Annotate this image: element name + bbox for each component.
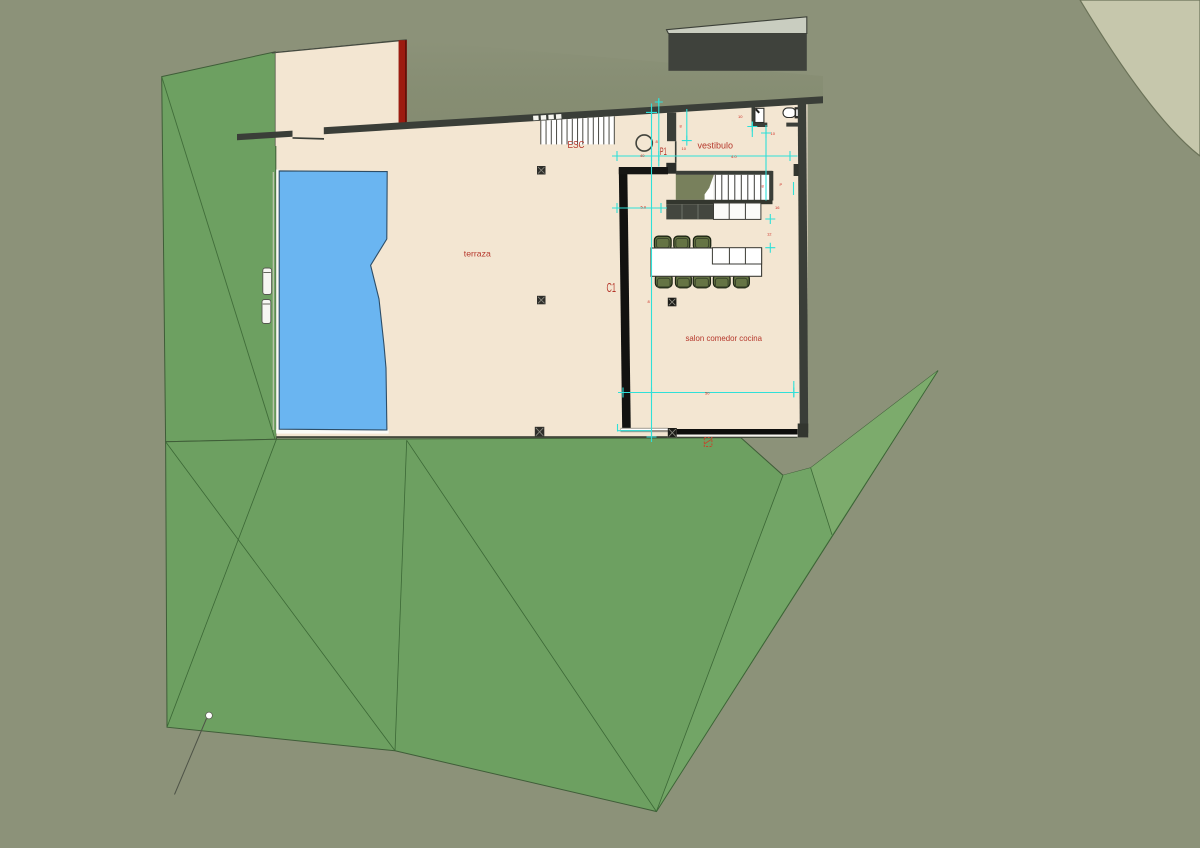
svg-text:ESC: ESC	[568, 140, 585, 151]
svg-text:salon comedor cocina: salon comedor cocina	[686, 333, 763, 343]
svg-text:12: 12	[767, 232, 772, 237]
svg-text:vestibulo: vestibulo	[698, 141, 734, 151]
svg-text:10: 10	[771, 131, 776, 136]
svg-text:terraza: terraza	[464, 248, 491, 258]
svg-text:4.0: 4.0	[731, 154, 737, 159]
svg-text:P: P	[780, 182, 783, 187]
svg-text:10: 10	[738, 114, 743, 119]
svg-text:5.0: 5.0	[641, 205, 647, 210]
svg-text:10: 10	[682, 146, 687, 151]
svg-text:40: 40	[640, 153, 645, 158]
svg-text:C1: C1	[607, 281, 617, 295]
svg-text:50: 50	[705, 391, 710, 396]
svg-text:16: 16	[775, 205, 780, 210]
